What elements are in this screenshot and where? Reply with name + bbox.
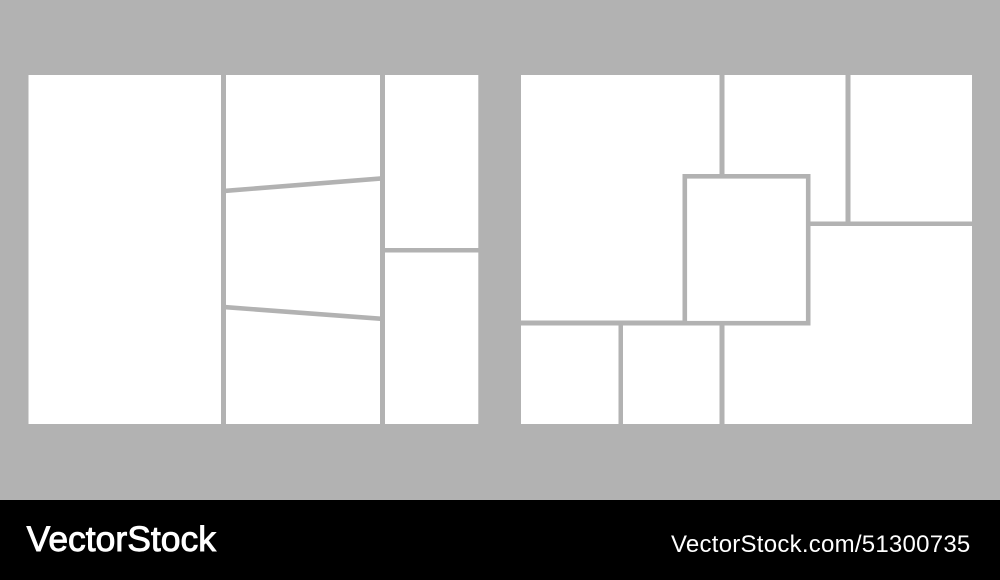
svg-text:VectorStock.com/51300735: VectorStock.com/51300735 — [671, 531, 971, 558]
svg-text:VectorStock: VectorStock — [27, 519, 217, 559]
